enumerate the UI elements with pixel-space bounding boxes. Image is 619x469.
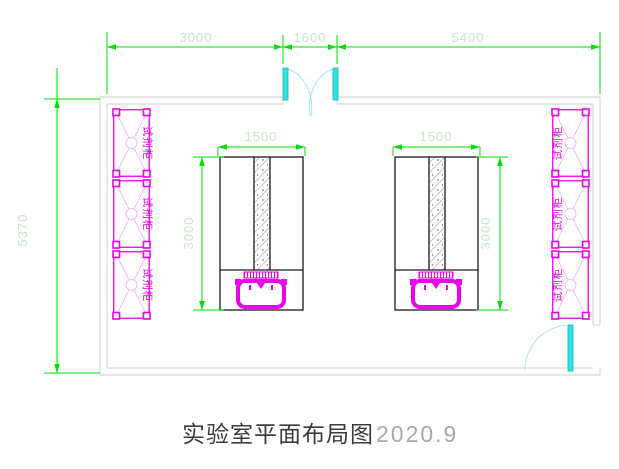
dim-label-left-wall: 5370: [15, 214, 30, 247]
door-leaf-right: [333, 68, 338, 100]
sink-icon: [235, 272, 287, 307]
cabinet-column-right: 试剂柜 试剂柜 试剂柜: [551, 109, 589, 319]
dim-label-bench-left-width: 1500: [245, 129, 278, 144]
dim-label-top-2: 1600: [294, 30, 327, 45]
cabinet-label: 试剂柜: [551, 268, 564, 303]
door-leaf: [568, 325, 573, 371]
cabinet-label: 试剂柜: [551, 126, 564, 161]
door-leaf-left: [283, 68, 288, 100]
dim-label-top-3: 5400: [452, 30, 485, 45]
door-double-top: [283, 68, 338, 116]
drawing-title-year: 2020.9: [376, 421, 458, 447]
cabinet-column-left: 试剂柜 试剂柜 试剂柜: [113, 109, 154, 319]
dim-label-bench-right-depth: 3000: [478, 217, 493, 250]
door-single-right: [525, 325, 573, 371]
cabinet-label: 试剂柜: [141, 126, 154, 161]
dimension-top: 3000 1600 5400: [107, 30, 600, 94]
floor-plan-drawing: 试剂柜 试剂柜 试剂柜 试剂柜 试剂柜 试剂柜 3000 1600 5400: [0, 0, 619, 469]
drawing-title: 实验室平面布局图 2020.9: [182, 421, 458, 447]
cabinet-label: 试剂柜: [141, 197, 154, 232]
cabinet-label: 试剂柜: [141, 268, 154, 303]
dim-label-bench-right-width: 1500: [420, 129, 453, 144]
bench-left: [220, 157, 303, 310]
room-walls: [100, 97, 600, 375]
drawing-title-text: 实验室平面布局图: [182, 421, 374, 447]
dim-label-bench-left-depth: 3000: [181, 217, 196, 250]
dim-label-top-1: 3000: [180, 30, 213, 45]
dimension-left-wall: 5370: [15, 68, 100, 373]
sink-icon: [410, 272, 462, 307]
cad-canvas: 试剂柜 试剂柜 试剂柜 试剂柜 试剂柜 试剂柜 3000 1600 5400: [0, 0, 619, 469]
bench-right: [395, 157, 478, 310]
cabinet-label: 试剂柜: [551, 197, 564, 232]
